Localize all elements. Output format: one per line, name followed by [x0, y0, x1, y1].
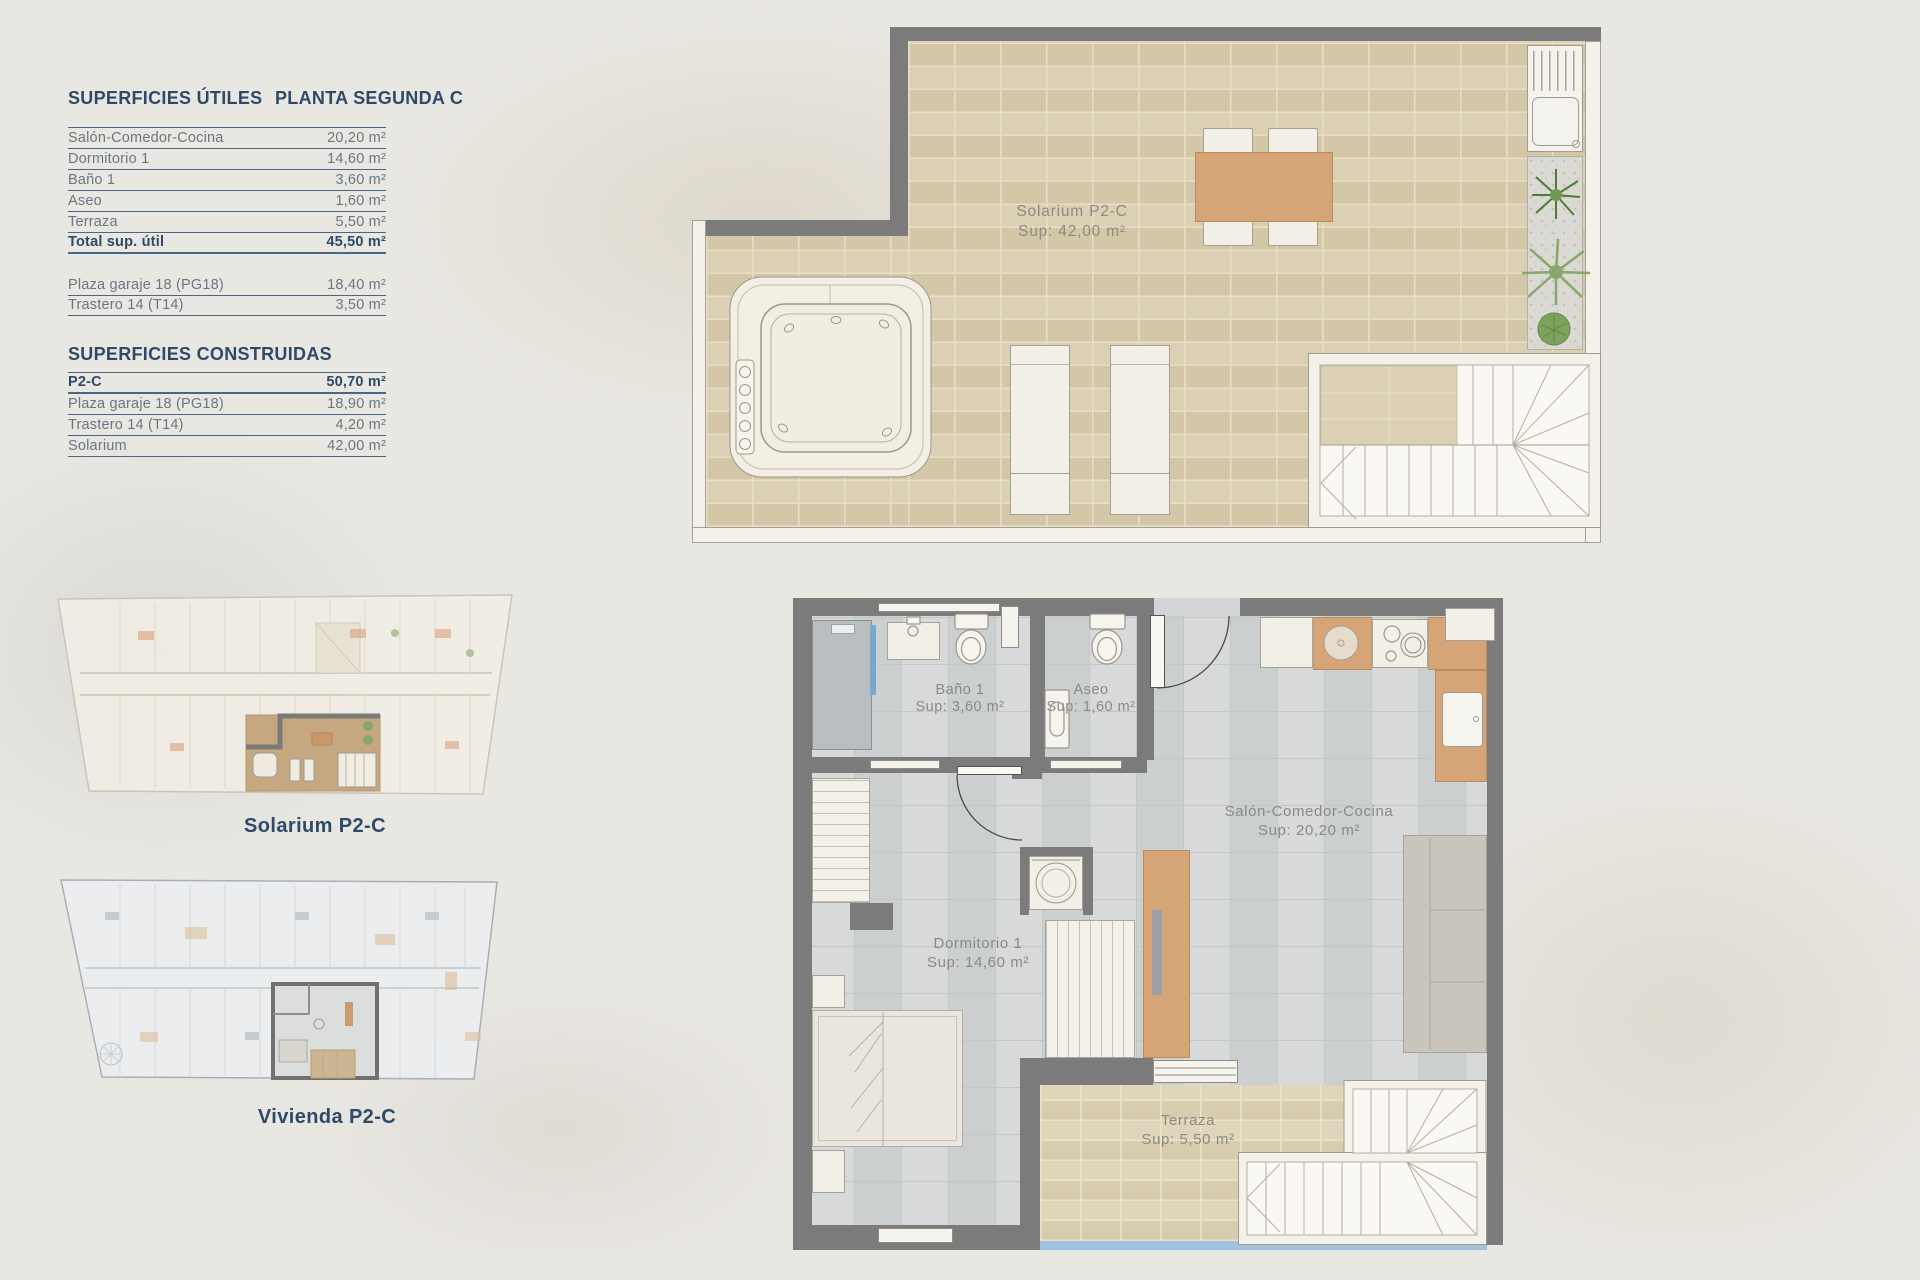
wall [692, 527, 1601, 543]
palm-plant-icon [1522, 239, 1590, 305]
row-label: Trastero 14 (T14) [68, 297, 184, 313]
row-value: 45,50 m² [326, 234, 386, 250]
chair [1203, 128, 1253, 155]
wall [1020, 1058, 1040, 1227]
palm-plant-icon [1532, 169, 1580, 219]
table-row: Plaza garaje 18 (PG18) 18,90 m² [68, 394, 386, 415]
table-row: Trastero 14 (T14) 4,20 m² [68, 415, 386, 436]
row-label: Baño 1 [68, 172, 115, 188]
useful-areas-table: Salón-Comedor-Cocina 20,20 m² Dormitorio… [68, 127, 386, 254]
wall [1487, 598, 1503, 1245]
stairs [1308, 353, 1601, 528]
spacer [68, 254, 386, 276]
entry-opening [1154, 598, 1240, 616]
row-value: 18,90 m² [327, 396, 386, 412]
shower-glass [870, 625, 876, 695]
row-label: P2-C [68, 374, 102, 390]
table-row-highlight: P2-C 50,70 m² [68, 373, 386, 394]
room-label-terraza: Terraza Sup: 5,50 m² [1141, 1111, 1234, 1149]
row-label: Total sup. útil [68, 234, 164, 250]
room-name: Solarium P2-C [1016, 202, 1127, 222]
wall [692, 220, 706, 543]
room-area: Sup: 3,60 m² [915, 699, 1004, 716]
vivienda-plan: Baño 1 Sup: 3,60 m² Aseo Sup: 1,60 m² Sa… [793, 598, 1503, 1255]
entry-door-leaf [1150, 615, 1165, 688]
row-label: Plaza garaje 18 (PG18) [68, 277, 224, 293]
table-row: Baño 1 3,60 m² [68, 170, 386, 191]
built-areas-title: SUPERFICIES CONSTRUIDAS [68, 344, 386, 366]
washing-machine [1029, 856, 1083, 910]
wardrobe [812, 778, 870, 903]
annex-areas-table: Plaza garaje 18 (PG18) 18,40 m² Trastero… [68, 276, 386, 316]
overview-vivienda-caption: Vivienda P2-C [258, 1106, 396, 1129]
floorplan-sheet: SUPERFICIES ÚTILES PLANTA SEGUNDA C Saló… [0, 0, 1920, 1280]
wall [793, 598, 812, 1250]
wall [1083, 853, 1093, 915]
row-value: 20,20 m² [327, 130, 386, 146]
planter-bed [1527, 156, 1583, 350]
table-row: Terraza 5,50 m² [68, 212, 386, 233]
wall [1020, 847, 1029, 915]
room-label-bano: Baño 1 Sup: 3,60 m² [915, 682, 1004, 716]
tv-icon [1152, 910, 1162, 995]
shower-tray [812, 620, 872, 750]
sideboard [1143, 850, 1190, 1058]
room-name: Dormitorio 1 [927, 934, 1029, 953]
sliding-door [1153, 1060, 1238, 1083]
wardrobe [1045, 920, 1135, 1058]
overview-vivienda-plan [45, 872, 515, 1092]
window [878, 1228, 953, 1243]
row-label: Salón-Comedor-Cocina [68, 130, 224, 146]
door-sill [870, 760, 940, 769]
row-value: 3,60 m² [335, 172, 386, 188]
jacuzzi [729, 276, 932, 478]
table-row-total: Total sup. útil 45,50 m² [68, 233, 386, 254]
nightstand [812, 975, 845, 1008]
spacer [68, 316, 386, 344]
row-label: Solarium [68, 438, 127, 454]
wall [692, 220, 908, 236]
table-row: Trastero 14 (T14) 3,50 m² [68, 296, 386, 316]
room-name: Aseo [1046, 682, 1135, 699]
overview-solarium-plan [50, 593, 520, 803]
chair [1268, 219, 1318, 246]
kitchen-counter [1313, 617, 1372, 670]
room-name: Salón-Comedor-Cocina [1225, 802, 1394, 821]
drainboard-icon [1533, 51, 1577, 91]
wall [890, 27, 908, 236]
stairs [1238, 1080, 1487, 1245]
room-label-dormitorio: Dormitorio 1 Sup: 14,60 m² [927, 934, 1029, 972]
duct-shaft [1001, 606, 1019, 648]
highlighted-solarium-unit [246, 715, 380, 791]
washbasin [887, 622, 940, 660]
kitchen-cabinet [1445, 608, 1495, 641]
areas-panel: SUPERFICIES ÚTILES PLANTA SEGUNDA C Saló… [68, 88, 386, 457]
room-label-salon: Salón-Comedor-Cocina Sup: 20,20 m² [1225, 802, 1394, 840]
room-area: Sup: 5,50 m² [1141, 1130, 1234, 1149]
room-area: Sup: 14,60 m² [927, 953, 1029, 972]
room-area: Sup: 1,60 m² [1046, 699, 1135, 716]
room-name: Baño 1 [915, 682, 1004, 699]
dining-table [1195, 152, 1333, 222]
nightstand [812, 1150, 845, 1193]
kitchen-cabinet [1260, 617, 1313, 668]
table-row: Salón-Comedor-Cocina 20,20 m² [68, 128, 386, 149]
row-label: Dormitorio 1 [68, 151, 149, 167]
row-label: Plaza garaje 18 (PG18) [68, 396, 224, 412]
chair [1203, 219, 1253, 246]
row-value: 42,00 m² [327, 438, 386, 454]
sofa [1403, 835, 1487, 1053]
row-value: 1,60 m² [335, 193, 386, 209]
sun-lounger [1110, 345, 1170, 515]
sun-lounger [1010, 345, 1070, 515]
solarium-plan: Solarium P2-C Sup: 42,00 m² [692, 25, 1601, 543]
window [878, 603, 1000, 612]
panel-title: SUPERFICIES ÚTILES [68, 88, 262, 109]
room-label-aseo: Aseo Sup: 1,60 m² [1046, 682, 1135, 716]
table-row: Dormitorio 1 14,60 m² [68, 149, 386, 170]
cooktop [1372, 619, 1428, 668]
panel-subtitle: PLANTA SEGUNDA C [275, 88, 463, 109]
row-label: Aseo [68, 193, 102, 209]
room-name: Terraza [1141, 1111, 1234, 1130]
chair [1268, 128, 1318, 155]
wall [890, 27, 1601, 41]
wall [1030, 612, 1045, 762]
table-row: Plaza garaje 18 (PG18) 18,40 m² [68, 276, 386, 296]
room-label-solarium: Solarium P2-C Sup: 42,00 m² [1016, 202, 1127, 242]
kitchen-sink [1442, 692, 1483, 747]
row-value: 4,20 m² [335, 417, 386, 433]
wall [1040, 1058, 1153, 1085]
outdoor-sink-unit [1527, 45, 1583, 152]
row-label: Terraza [68, 214, 118, 230]
table-row: Aseo 1,60 m² [68, 191, 386, 212]
overview-solarium-caption: Solarium P2-C [244, 815, 386, 838]
room-area: Sup: 42,00 m² [1016, 222, 1127, 242]
highlighted-vivienda-unit [273, 984, 377, 1078]
room-area: Sup: 20,20 m² [1225, 821, 1394, 840]
bush-plant-icon [1538, 313, 1570, 345]
row-value: 18,40 m² [327, 277, 386, 293]
sink-basin [1532, 97, 1579, 146]
bedroom-door-leaf [957, 766, 1022, 775]
table-row: Solarium 42,00 m² [68, 436, 386, 457]
bed [812, 1010, 963, 1147]
row-value: 3,50 m² [335, 297, 386, 313]
panel-header: SUPERFICIES ÚTILES PLANTA SEGUNDA C [68, 88, 386, 127]
row-label: Trastero 14 (T14) [68, 417, 184, 433]
wall [850, 903, 893, 930]
faucet-icon [1572, 140, 1580, 148]
row-value: 50,70 m² [326, 374, 386, 390]
built-areas-table: P2-C 50,70 m² Plaza garaje 18 (PG18) 18,… [68, 372, 386, 457]
door-sill [1050, 760, 1122, 769]
row-value: 5,50 m² [335, 214, 386, 230]
row-value: 14,60 m² [327, 151, 386, 167]
